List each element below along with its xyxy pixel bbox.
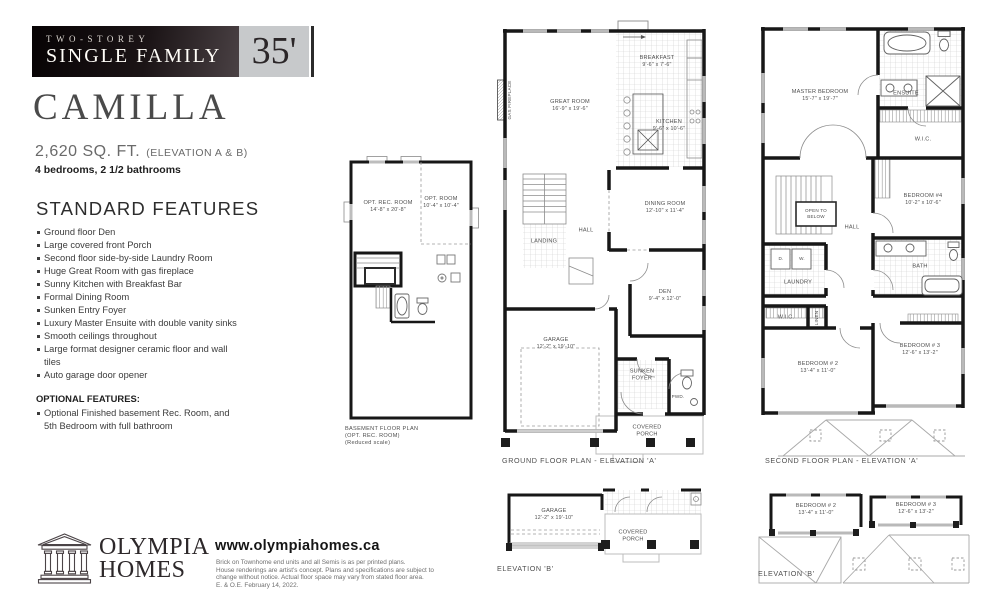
standard-features-list: Ground floor Den Large covered front Por… [36, 226, 238, 382]
header-banner: TWO-STOREY SINGLE FAMILY [32, 26, 239, 77]
second-floor-b-drawing [756, 485, 972, 605]
room-label-ensuite: ENSUITE [893, 90, 919, 97]
room-label-wic-master: W.I.C. [915, 136, 931, 143]
room-label-den: DEN 9'-4" x 12'-0" [649, 289, 681, 303]
disclaimer-line: E. & O.E. February 14, 2022. [216, 582, 434, 590]
room-label-open-to-below: OPEN TO BELOW [805, 208, 827, 220]
sqft-value: 2,620 SQ. FT. [35, 143, 140, 160]
brand-line2: HOMES [99, 559, 209, 582]
room-label-bath: BATH [912, 263, 927, 270]
room-label-garage: GARAGE 12'-2" x 19'-10" [537, 337, 576, 351]
room-label-laundry: LAUNDRY [784, 279, 812, 286]
second-floor-plan-a: MASTER BEDROOM 15'-7" x 19'-7" ENSUITE W… [758, 18, 970, 470]
room-label-covered-porch-b: COVERED PORCH [616, 530, 650, 545]
disclaimer-line: House renderings are artist's concept. P… [216, 567, 434, 575]
room-label-bedroom-3: BEDROOM # 3 12'-6" x 13'-2" [900, 343, 940, 357]
second-floor-plan-drawing [758, 18, 970, 470]
second-floor-b-caption: ELEVATION 'B' [758, 569, 815, 578]
ground-floor-plan-b: GARAGE 12'-2" x 19'-10" COVERED PORCH EL… [497, 488, 712, 604]
olympia-temple-logo-icon [36, 532, 93, 584]
second-floor-plan-b: BEDROOM # 2 13'-4" x 11'-0" BEDROOM # 3 … [756, 485, 972, 605]
optional-features-heading: OPTIONAL FEATURES: [36, 393, 140, 404]
basement-floor-plan: OPT. REC. ROOM 14'-8" x 20'-8" OPT. ROOM… [343, 156, 480, 456]
feature-item: Sunny Kitchen with Breakfast Bar [36, 278, 238, 291]
room-label-linen: LINEN [814, 311, 820, 326]
second-floor-caption: SECOND FLOOR PLAN - ELEVATION 'A' [765, 456, 918, 465]
optional-feature-item: Optional Finished basement Rec. Room, an… [36, 407, 234, 433]
website-link[interactable]: www.olympiahomes.ca [215, 538, 380, 554]
room-label-breakfast: BREAKFAST 9'-6" x 7'-6" [640, 55, 675, 69]
model-name: CAMILLA [33, 86, 230, 129]
feature-item: Auto garage door opener [36, 369, 238, 382]
banner-home-type: SINGLE FAMILY [46, 45, 239, 68]
banner-rule [311, 26, 314, 77]
room-label-kitchen: KITCHEN 9'-6" x 10'-6" [653, 119, 685, 133]
washer-label: W. [799, 256, 805, 262]
standard-features-heading: STANDARD FEATURES [36, 198, 259, 220]
bed-bath-config: 4 bedrooms, 2 1/2 bathrooms [35, 164, 181, 176]
feature-item: Smooth ceilings throughout [36, 330, 238, 343]
lot-width-badge: 35' [239, 26, 309, 77]
room-label-landing: LANDING [531, 238, 557, 245]
feature-item: Luxury Master Ensuite with double vanity… [36, 317, 238, 330]
ground-floor-b-drawing [497, 488, 712, 604]
feature-item: Sunken Entry Foyer [36, 304, 238, 317]
ground-floor-caption: GROUND FLOOR PLAN - ELEVATION 'A' [502, 456, 656, 465]
room-label-bedroom-3-b: BEDROOM # 3 12'-6" x 13'-2" [896, 502, 936, 516]
basement-caption: BASEMENT FLOOR PLAN (OPT. REC. ROOM) (Re… [345, 426, 418, 447]
feature-item: Huge Great Room with gas fireplace [36, 265, 238, 278]
room-label-opt-room: OPT. ROOM 10'-4" x 10'-4" [423, 196, 459, 210]
ground-floor-plan-drawing [497, 18, 712, 470]
optional-features-list: Optional Finished basement Rec. Room, an… [36, 407, 234, 433]
room-label-dining-room: DINING ROOM 12'-10" x 11'-4" [645, 201, 686, 215]
banner-storey-type: TWO-STOREY [46, 34, 239, 44]
room-label-hall: HALL [579, 227, 594, 234]
square-footage: 2,620 SQ. FT.(ELEVATION A & B) [35, 143, 248, 161]
room-label-wic-2: W.I.C. [778, 314, 794, 321]
room-label-gas-fireplace: GAS FIREPLACE [507, 80, 513, 119]
dryer-label: D. [779, 256, 784, 262]
feature-item: Large covered front Porch [36, 239, 238, 252]
elevation-note: (ELEVATION A & B) [146, 147, 247, 159]
disclaimer-line: change without notice. Actual floor spac… [216, 574, 434, 582]
room-label-bedroom-4: BEDROOM #4 10'-2" x 10'-6" [904, 193, 943, 207]
room-label-sunken-foyer: SUNKEN FOYER [625, 369, 659, 384]
room-label-hall-second: HALL [845, 224, 860, 231]
room-label-bedroom-2: BEDROOM # 2 13'-4" x 11'-0" [798, 361, 838, 375]
feature-item: Formal Dining Room [36, 291, 238, 304]
feature-item: Ground floor Den [36, 226, 238, 239]
room-label-great-room: GREAT ROOM 16'-9" x 19'-6" [550, 99, 590, 113]
brand-line1: OLYMPIA [99, 536, 209, 559]
room-label-covered-porch: COVERED PORCH [630, 425, 664, 440]
disclaimer-line: Brick on Townhome end units and all Semi… [216, 559, 434, 567]
ground-floor-b-caption: ELEVATION 'B' [497, 564, 554, 573]
feature-item: Large format designer ceramic floor and … [36, 343, 238, 369]
feature-item: Second floor side-by-side Laundry Room [36, 252, 238, 265]
room-label-garage-b: GARAGE 12'-2" x 19'-10" [535, 508, 574, 522]
ground-floor-plan-a: GREAT ROOM 16'-9" x 19'-6" GAS FIREPLACE… [497, 18, 712, 470]
room-label-master-bedroom: MASTER BEDROOM 15'-7" x 19'-7" [792, 89, 849, 103]
room-label-bedroom-2-b: BEDROOM # 2 13'-4" x 11'-0" [796, 503, 836, 517]
brand-name: OLYMPIA HOMES [99, 536, 209, 582]
room-label-opt-rec-room: OPT. REC. ROOM 14'-8" x 20'-8" [363, 200, 412, 214]
room-label-pwd: PWD. [672, 394, 685, 400]
disclaimer-text: Brick on Townhome end units and all Semi… [216, 559, 434, 589]
